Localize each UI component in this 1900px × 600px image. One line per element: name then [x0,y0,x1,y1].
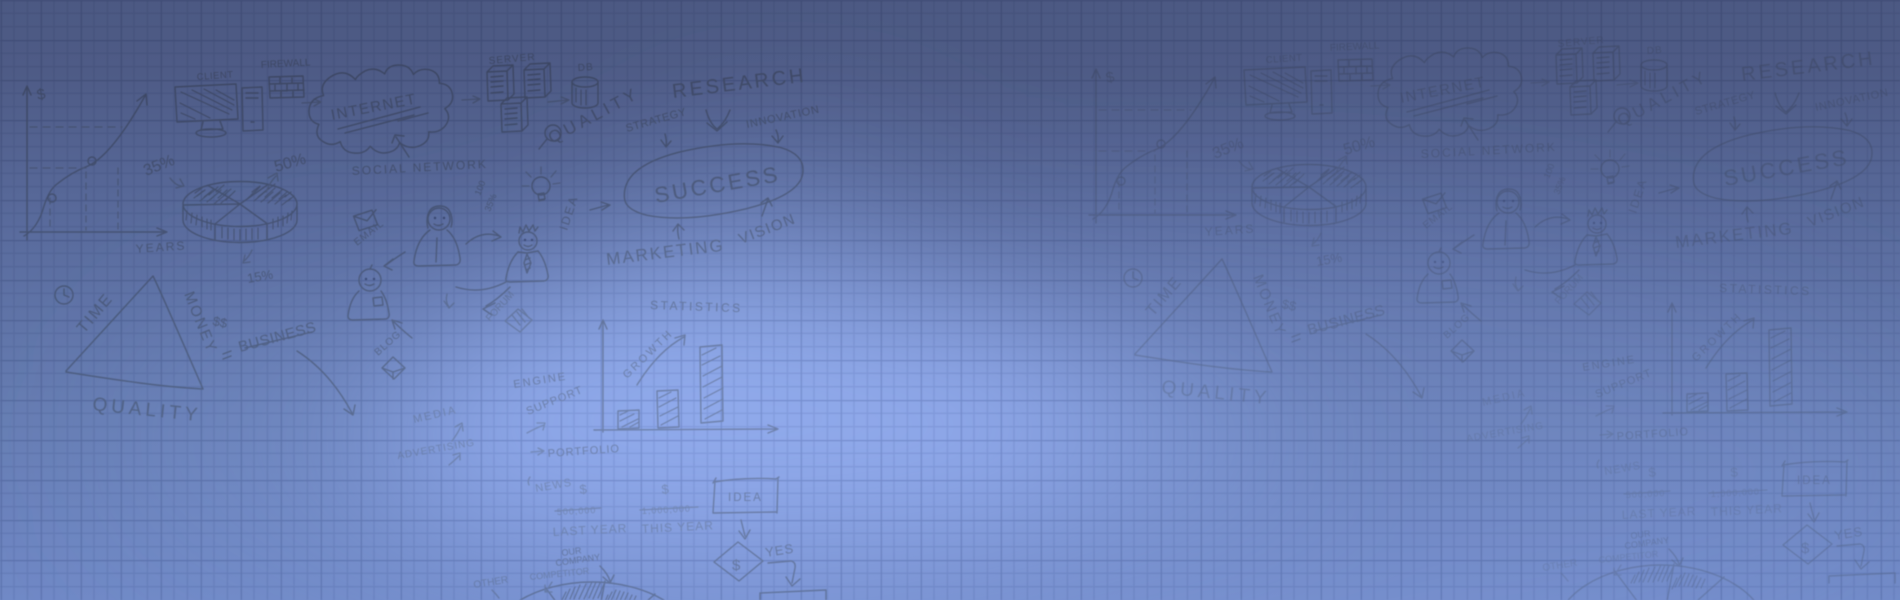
svg-text:IDEA: IDEA [728,492,763,504]
svg-text:$: $ [732,557,741,574]
svg-text:DB: DB [577,62,594,74]
